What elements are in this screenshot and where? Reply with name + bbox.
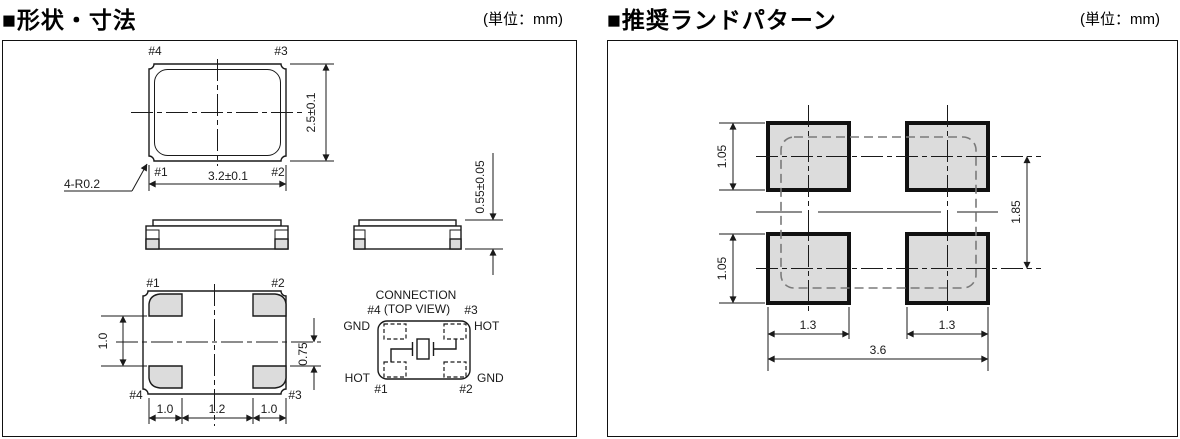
bottom-pin2-label: #2 [271,276,285,290]
connection-title: CONNECTION [376,288,457,302]
dim-b1-label: 1.0 [157,402,174,416]
connection-gnd-tl-label: GND [343,319,370,333]
dim-b2-label: 1.2 [209,402,226,416]
side-body [146,226,288,249]
side-terminal-pad [450,239,461,249]
corner-radius-label: 4-R0.2 [64,177,100,191]
bottom-pin4-label: #4 [129,388,143,402]
side-lid [359,220,456,226]
dim-pad-widths: 1.3 1.3 3.6 [768,307,988,371]
dim-row-pitch-label: 1.85 [1009,200,1023,224]
connection-hot-bl-label: HOT [345,371,371,385]
top-view-pin4-label: #4 [148,44,162,58]
connection-pad-1 [384,362,406,377]
connection-body [378,321,470,379]
connection-pin2-label: #2 [459,382,473,396]
land-pattern-drawing: 1.05 1.05 1.85 1.3 1.3 3.6 [608,41,1174,433]
top-view-pin2-label: #2 [271,165,285,179]
dim-center-to-pad-label: 0.75 [296,342,310,366]
left-panel-title: ■形状・寸法 [2,1,137,35]
connection-subtitle: (TOP VIEW) [384,302,450,316]
connection-hot-tr-label: HOT [474,319,500,333]
connection-pin3-label: #3 [464,303,478,317]
side-terminal-pad [146,239,159,249]
land-pattern-panel: 1.05 1.05 1.85 1.3 1.3 3.6 [607,40,1178,437]
corner-radius-note: 4-R0.2 [64,164,147,191]
shape-dimensions-drawing: #4 #3 #1 #2 3.2±0.1 2.5±0.1 4-R0.2 [3,41,573,433]
side-lid [153,220,281,226]
bottom-pad-1 [149,294,182,316]
right-unit-label: (単位：mm) [1080,8,1160,29]
connection-pin4-label: #4 [367,303,381,317]
connection-gnd-br-label: GND [477,371,504,385]
dim-pad-gap-v-label: 1.0 [96,332,110,349]
dim-pad-height-top-label: 1.05 [715,144,729,168]
side-terminal-pad [275,239,288,249]
land-pads [768,123,988,303]
connection-diagram: CONNECTION (TOP VIEW) #4 #3 GND HOT HOT … [343,288,504,396]
bottom-pad-4 [149,366,182,388]
top-view: #4 #3 #1 #2 3.2±0.1 2.5±0.1 4-R0.2 [64,44,334,191]
crystal-symbol [391,339,456,362]
dim-pad-width-right-label: 1.3 [939,318,956,332]
left-unit-label: (単位：mm) [483,8,563,29]
dim-thickness-label: 0.55±0.05 [473,160,487,214]
dim-width: 3.2±0.1 [149,165,286,191]
side-view-end [354,220,461,249]
dim-pad-height-bottom-label: 1.05 [715,256,729,280]
connection-pin1-label: #1 [374,382,388,396]
top-view-pin3-label: #3 [274,44,288,58]
bottom-view: #1 #2 #4 #3 1.0 0.75 1.0 1.2 [96,276,321,426]
connection-pad-4 [384,324,406,339]
dim-overall-width-label: 3.6 [870,343,887,357]
bottom-pin1-label: #1 [146,276,160,290]
dim-thickness: 0.55±0.05 [465,153,503,275]
bottom-pad-3 [253,366,286,388]
right-panel-title: ■推奨ランドパターン [607,1,837,35]
dim-row-pitch: 1.85 [1009,157,1027,269]
top-view-pin1-label: #1 [154,165,168,179]
side-view-front [146,220,288,249]
connection-pad-2 [444,362,466,377]
dim-b3-label: 1.0 [261,402,278,416]
dim-pad-width-left-label: 1.3 [800,318,817,332]
side-body [354,226,461,249]
connection-pad-3 [444,324,466,339]
dim-center-to-pad: 0.75 [290,318,321,390]
bottom-pad-2 [253,294,286,316]
dim-width-label: 3.2±0.1 [208,169,248,183]
dim-height-label: 2.5±0.1 [304,92,318,132]
datasheet-drawing-page: { "left": { "title": "■形状・寸法", "unit": "… [0,0,1180,439]
dim-pad-widths: 1.0 1.2 1.0 [149,398,286,424]
dim-pad-gap-v: 1.0 [96,316,147,366]
shape-dimensions-panel: #4 #3 #1 #2 3.2±0.1 2.5±0.1 4-R0.2 [2,40,577,437]
side-terminal-pad [354,239,365,249]
bottom-pin3-label: #3 [288,388,302,402]
dim-height: 2.5±0.1 [290,64,334,161]
